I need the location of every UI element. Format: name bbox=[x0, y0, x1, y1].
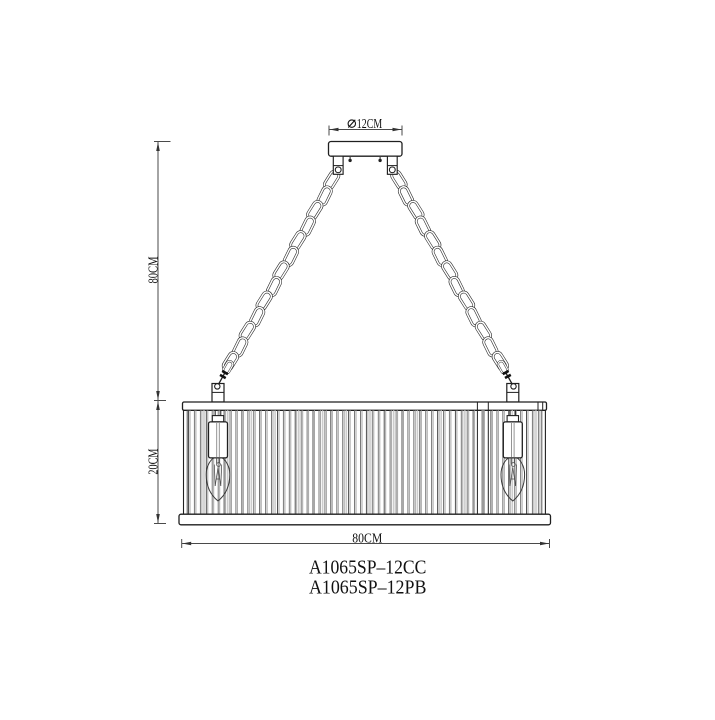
svg-text:20CM: 20CM bbox=[146, 449, 161, 475]
svg-text:80CM: 80CM bbox=[146, 257, 161, 284]
svg-text:A1065SP–12PB: A1065SP–12PB bbox=[309, 577, 427, 599]
svg-text:80CM: 80CM bbox=[352, 531, 382, 546]
svg-text:12CM: 12CM bbox=[357, 117, 383, 132]
svg-text:A1065SP–12CC: A1065SP–12CC bbox=[309, 557, 427, 579]
